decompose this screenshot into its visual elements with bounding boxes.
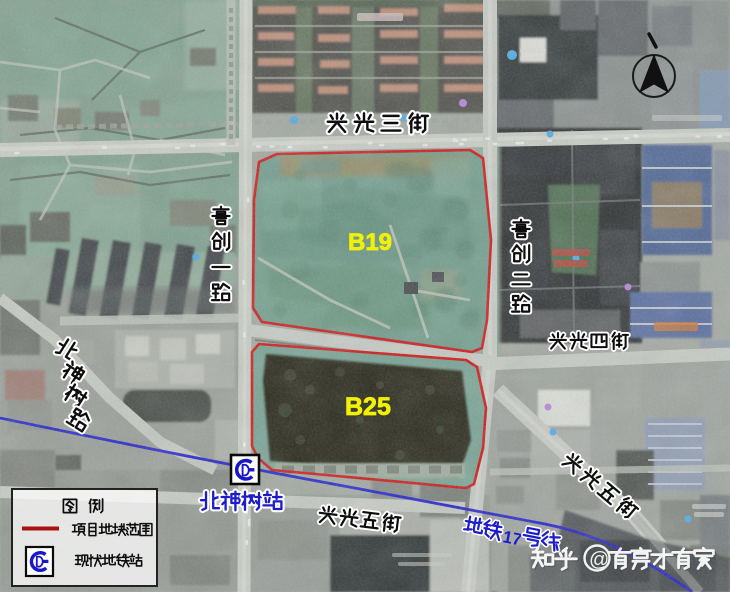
svg-text:B25: B25 xyxy=(345,393,391,421)
svg-text:17: 17 xyxy=(501,527,523,549)
svg-text:B19: B19 xyxy=(348,229,392,256)
svg-text:@: @ xyxy=(589,549,609,571)
